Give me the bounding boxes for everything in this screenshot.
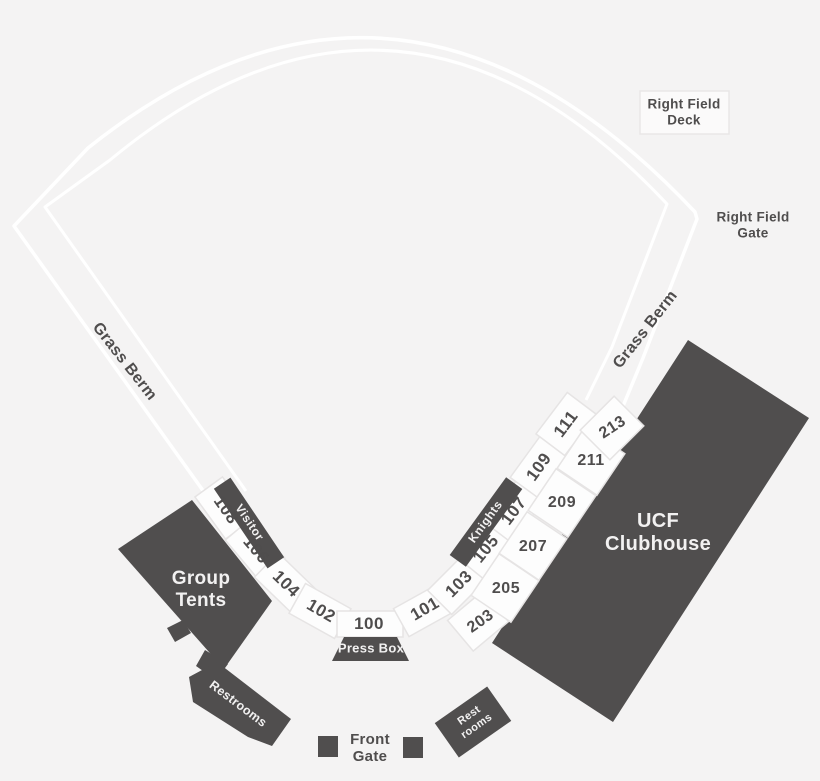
section-205-label[interactable]: 205 — [492, 580, 520, 598]
section-211-label[interactable]: 211 — [577, 452, 604, 470]
press-box-label: Press Box — [338, 642, 404, 657]
section-207-label[interactable]: 207 — [519, 538, 547, 556]
section-100-label[interactable]: 100 — [354, 614, 384, 634]
seating-map: Right Field Deck Right Field Gate Grass … — [0, 0, 820, 781]
right-field-gate-label: Right Field Gate — [713, 209, 793, 240]
front-gate-square-left — [318, 736, 338, 757]
front-gate-square-right — [403, 737, 423, 758]
section-209-label[interactable]: 209 — [548, 494, 576, 512]
right-field-deck-label[interactable]: Right Field Deck — [641, 96, 727, 127]
front-gate-label: Front Gate — [339, 731, 401, 766]
group-tents-label: Group Tents — [161, 568, 241, 612]
ucf-clubhouse-label: UCF Clubhouse — [593, 510, 723, 556]
